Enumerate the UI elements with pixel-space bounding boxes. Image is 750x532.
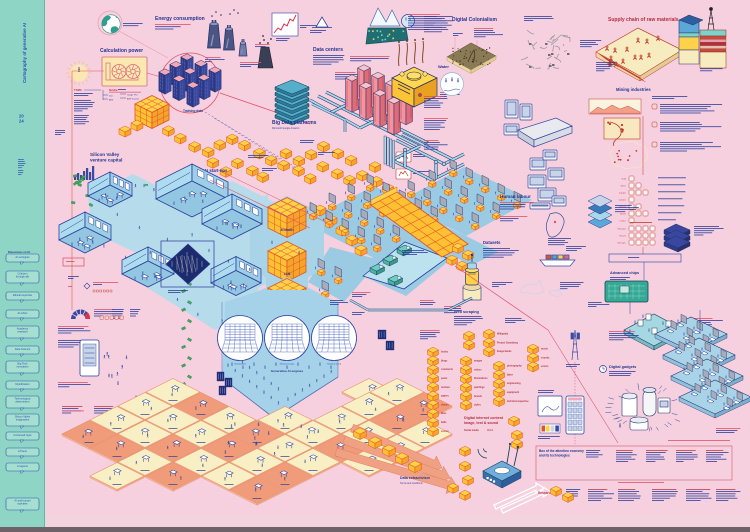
svg-text:Intel: Intel	[109, 95, 113, 98]
svg-text:Energy consumption: Energy consumption	[155, 16, 205, 22]
svg-text:Continued hype: Continued hype	[13, 433, 32, 437]
svg-text:through a/b: through a/b	[16, 275, 30, 279]
svg-text:Web2: Web2	[487, 429, 494, 432]
svg-text:Generative AI engines: Generative AI engines	[271, 369, 304, 373]
svg-text:Data centers: Data centers	[313, 47, 343, 53]
svg-text:Data Science: Data Science	[15, 347, 31, 351]
svg-text:AI ethics: AI ethics	[18, 311, 29, 315]
svg-text:sounds: sounds	[541, 356, 550, 359]
svg-text:Digital internet content: Digital internet content	[464, 416, 504, 420]
svg-text:determinism: determinism	[15, 400, 29, 404]
svg-text:music: music	[541, 348, 549, 351]
svg-text:Water: Water	[438, 64, 449, 69]
svg-text:Terms and conditions: Terms and conditions	[400, 482, 423, 485]
svg-text:engineering: engineering	[507, 382, 521, 385]
svg-text:paintings: paintings	[474, 386, 485, 389]
svg-text:TSMC: TSMC	[74, 88, 82, 92]
svg-text:voices: voices	[541, 365, 549, 368]
svg-text:Nvidia: Nvidia	[109, 88, 118, 92]
svg-text:Image, text & sound: Image, text & sound	[464, 421, 498, 425]
svg-text:Calculation power: Calculation power	[100, 48, 143, 54]
svg-text:blogs: blogs	[441, 359, 448, 362]
svg-text:comments: comments	[441, 368, 454, 371]
svg-text:A Poem: A Poem	[18, 449, 27, 453]
svg-text:Ethical expertise: Ethical expertise	[13, 293, 33, 297]
svg-text:AI ecologies: AI ecologies	[15, 255, 30, 259]
svg-text:labor: labor	[507, 373, 513, 376]
svg-text:Supply chain of raw materials: Supply chain of raw materials	[608, 17, 679, 23]
svg-text:illustrations: illustrations	[474, 377, 488, 380]
svg-text:likes: likes	[441, 412, 447, 415]
svg-text:Mystification: Mystification	[15, 382, 30, 386]
svg-text:technical expertise: technical expertise	[507, 400, 529, 403]
svg-text:and its technologies: and its technologies	[539, 454, 570, 458]
svg-text:AI agents: AI agents	[17, 464, 29, 468]
svg-text:Digital gadgets: Digital gadgets	[609, 365, 636, 369]
svg-text:videos: videos	[474, 368, 482, 371]
svg-text:Cartography of generative AI: Cartography of generative AI	[22, 23, 27, 83]
svg-text:AI Model: AI Model	[280, 228, 293, 232]
svg-text:brands: brands	[474, 395, 483, 398]
svg-text:bells: bells	[441, 421, 447, 424]
svg-text:reviews: reviews	[441, 386, 450, 389]
svg-text:Nickel: Nickel	[620, 214, 626, 216]
svg-text:Google TPU: Google TPU	[127, 95, 138, 97]
svg-text:Datasets: Datasets	[483, 240, 501, 245]
svg-text:venture capital: venture capital	[90, 158, 122, 163]
svg-text:Advanced chips: Advanced chips	[610, 271, 639, 275]
svg-text:activities: activities	[18, 502, 29, 506]
svg-text:Cobalto: Cobalto	[618, 199, 626, 202]
svg-text:innovation: innovation	[17, 365, 29, 369]
svg-text:Data extractivism: Data extractivism	[400, 476, 430, 480]
svg-text:scores: scores	[441, 430, 449, 433]
svg-text:Web scraping: Web scraping	[454, 310, 480, 314]
svg-text:Box of the attention economy: Box of the attention economy	[539, 449, 584, 453]
svg-text:Image banks: Image banks	[497, 350, 512, 353]
svg-text:photography: photography	[507, 365, 522, 368]
svg-text:Statistical sound: Statistical sound	[327, 363, 341, 366]
svg-text:papers: papers	[441, 395, 450, 398]
svg-text:books: books	[441, 351, 449, 354]
svg-text:Big Data platforms: Big Data platforms	[272, 120, 317, 126]
svg-text:AMD: AMD	[109, 99, 114, 102]
svg-text:Copper: Copper	[619, 192, 626, 195]
svg-text:Vibration: Vibration	[617, 228, 626, 231]
svg-text:shares: shares	[441, 403, 449, 406]
svg-text:Digital Colonialism: Digital Colonialism	[452, 17, 498, 23]
svg-text:AWS Trainium: AWS Trainium	[127, 98, 139, 101]
svg-text:Research: Research	[538, 491, 552, 495]
svg-text:Human labour: Human labour	[500, 194, 531, 199]
svg-text:styles: styles	[474, 404, 481, 407]
svg-text:Silver: Silver	[621, 185, 627, 188]
svg-text:imaginaries: imaginaries	[16, 418, 30, 422]
svg-text:Social media: Social media	[464, 429, 479, 432]
svg-text:research: research	[17, 330, 28, 334]
svg-text:Microsoft Google Amazon: Microsoft Google Amazon	[272, 127, 300, 130]
svg-text:images: images	[474, 360, 483, 363]
svg-text:Statistical text: Statistical text	[234, 363, 246, 366]
svg-text:Microph.: Microph.	[618, 242, 627, 245]
svg-text:Training data: Training data	[183, 109, 203, 113]
svg-text:Discourses on AI: Discourses on AI	[8, 250, 30, 254]
svg-text:Yttrium: Yttrium	[619, 235, 626, 238]
svg-text:Mining industries: Mining industries	[616, 87, 651, 92]
svg-text:Wikipedia: Wikipedia	[497, 333, 509, 336]
svg-text:Statistical images: Statistical images	[280, 363, 295, 366]
svg-text:posts: posts	[441, 377, 448, 380]
svg-text:Gold: Gold	[621, 179, 626, 181]
svg-text:LLM: LLM	[284, 272, 291, 276]
svg-text:equipment: equipment	[507, 391, 519, 394]
svg-text:Silicon Valley: Silicon Valley	[90, 152, 120, 157]
svg-text:24: 24	[19, 119, 24, 124]
svg-text:Project Gutenberg: Project Gutenberg	[497, 341, 518, 344]
svg-text:Coltan: Coltan	[620, 220, 627, 223]
